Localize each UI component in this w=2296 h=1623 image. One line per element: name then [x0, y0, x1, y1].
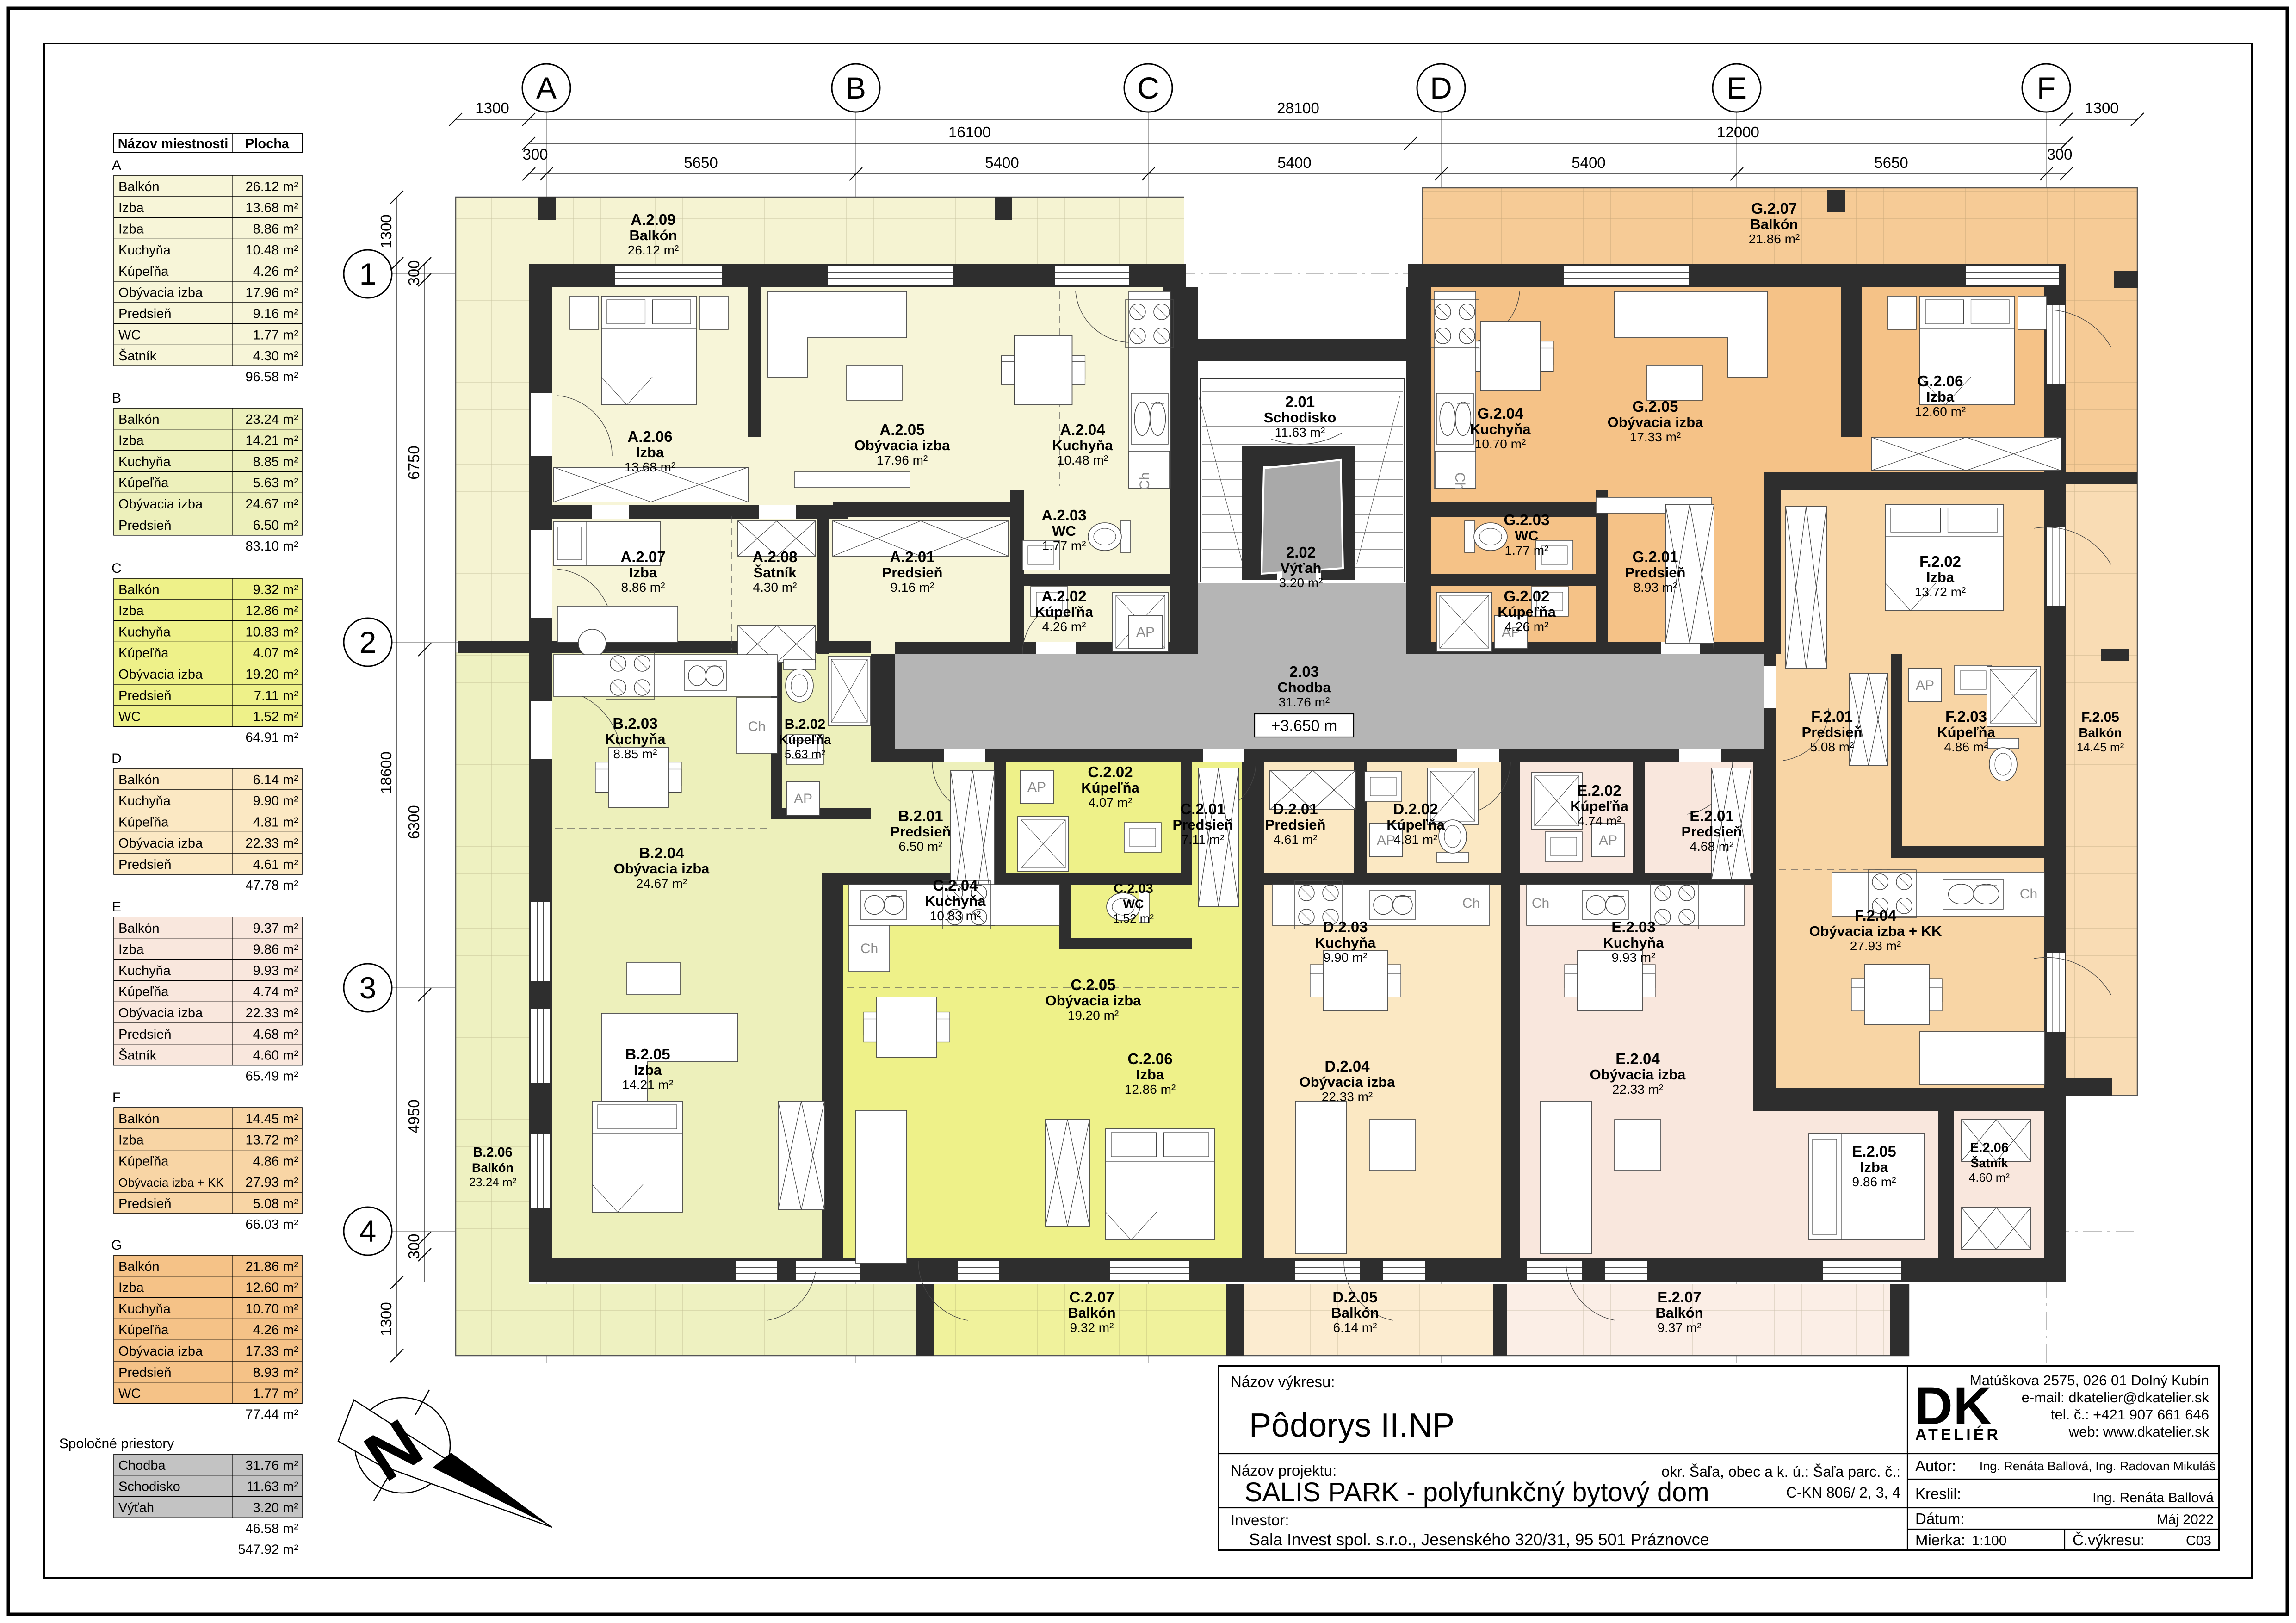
- svg-text:Izba: Izba: [629, 564, 657, 581]
- svg-text:A: A: [112, 158, 121, 173]
- svg-text:Kuchyňa: Kuchyňa: [118, 794, 171, 809]
- svg-text:ATELIÉR: ATELIÉR: [1915, 1426, 2001, 1443]
- svg-text:24.67 m²: 24.67 m²: [636, 876, 687, 891]
- svg-text:11.63 m²: 11.63 m²: [1275, 425, 1325, 440]
- svg-text:G.2.01: G.2.01: [1632, 548, 1678, 565]
- svg-text:Balkón: Balkón: [118, 412, 160, 427]
- svg-text:8.86 m²: 8.86 m²: [253, 222, 299, 236]
- svg-text:Kúpeľňa: Kúpeľňa: [1937, 724, 1995, 740]
- svg-text:Obývacia izba: Obývacia izba: [1608, 414, 1704, 430]
- svg-text:17.96 m²: 17.96 m²: [246, 285, 299, 300]
- svg-text:8.93 m²: 8.93 m²: [253, 1365, 299, 1380]
- svg-text:Izba: Izba: [118, 1281, 144, 1295]
- svg-text:4.26 m²: 4.26 m²: [253, 264, 299, 279]
- svg-text:Izba: Izba: [118, 942, 144, 957]
- svg-text:Plocha: Plocha: [245, 136, 290, 151]
- svg-text:14.45 m²: 14.45 m²: [246, 1112, 299, 1127]
- svg-text:1.77 m²: 1.77 m²: [253, 328, 299, 342]
- svg-text:Máj 2022: Máj 2022: [2157, 1512, 2214, 1527]
- svg-text:Balkón: Balkón: [629, 227, 677, 243]
- svg-text:5650: 5650: [684, 154, 718, 171]
- svg-text:Predsieň: Predsieň: [118, 1027, 171, 1042]
- svg-text:A.2.06: A.2.06: [627, 428, 672, 445]
- svg-text:D: D: [111, 751, 122, 766]
- svg-text:AP: AP: [1916, 678, 1934, 693]
- svg-text:F.2.03: F.2.03: [1945, 708, 1987, 725]
- svg-text:9.16 m²: 9.16 m²: [253, 307, 299, 322]
- svg-text:10.70 m²: 10.70 m²: [1475, 437, 1526, 451]
- svg-text:Izba: Izba: [1860, 1159, 1888, 1175]
- svg-text:F.2.02: F.2.02: [1919, 553, 1961, 570]
- svg-text:13.68 m²: 13.68 m²: [246, 201, 299, 216]
- svg-text:5.08 m²: 5.08 m²: [1810, 740, 1854, 754]
- svg-text:5.63 m²: 5.63 m²: [785, 747, 825, 761]
- svg-text:Ch: Ch: [2020, 886, 2037, 902]
- svg-text:Predsieň: Predsieň: [118, 1365, 171, 1380]
- svg-text:5.63 m²: 5.63 m²: [253, 476, 299, 490]
- svg-text:Balkón: Balkón: [118, 180, 160, 194]
- svg-text:Predsieň: Predsieň: [1173, 817, 1233, 833]
- svg-text:4.30 m²: 4.30 m²: [753, 580, 797, 595]
- svg-text:Chodba: Chodba: [118, 1458, 166, 1473]
- svg-text:Balkón: Balkón: [1655, 1305, 1703, 1321]
- svg-text:okr. Šaľa, obec a k. ú.: Šaľa: okr. Šaľa, obec a k. ú.: Šaľa parc. č.:: [1661, 1463, 1900, 1480]
- svg-text:12.60 m²: 12.60 m²: [1915, 404, 1966, 419]
- svg-text:Obývacia izba: Obývacia izba: [1300, 1074, 1396, 1090]
- svg-text:C.2.04: C.2.04: [933, 877, 978, 894]
- svg-text:27.93 m²: 27.93 m²: [246, 1175, 299, 1190]
- svg-text:Balkón: Balkón: [472, 1161, 514, 1175]
- svg-text:AP: AP: [1377, 833, 1395, 848]
- svg-text:9.16 m²: 9.16 m²: [891, 580, 934, 595]
- svg-text:B.2.06: B.2.06: [473, 1145, 512, 1160]
- svg-text:26.12 m²: 26.12 m²: [246, 180, 299, 194]
- svg-text:21.86 m²: 21.86 m²: [246, 1259, 299, 1274]
- svg-text:9.90 m²: 9.90 m²: [1324, 950, 1368, 965]
- svg-text:Kuchyňa: Kuchyňa: [118, 454, 171, 469]
- svg-text:C.2.01: C.2.01: [1180, 800, 1225, 818]
- svg-text:1: 1: [359, 257, 377, 291]
- svg-text:1300: 1300: [378, 1302, 395, 1336]
- svg-text:B.2.05: B.2.05: [625, 1046, 670, 1063]
- svg-text:22.33 m²: 22.33 m²: [1322, 1090, 1373, 1104]
- svg-text:Ch: Ch: [1452, 472, 1467, 490]
- svg-text:4.86 m²: 4.86 m²: [1944, 740, 1988, 754]
- svg-text:4.81 m²: 4.81 m²: [253, 815, 299, 830]
- svg-text:65.49 m²: 65.49 m²: [246, 1069, 299, 1084]
- svg-text:Obývacia izba: Obývacia izba: [1046, 992, 1142, 1009]
- svg-text:Ch: Ch: [1137, 472, 1152, 490]
- svg-text:14.45 m²: 14.45 m²: [2077, 740, 2124, 754]
- svg-text:19.20 m²: 19.20 m²: [1068, 1008, 1119, 1022]
- svg-text:4.74 m²: 4.74 m²: [1578, 814, 1621, 828]
- svg-text:4.07 m²: 4.07 m²: [253, 646, 299, 661]
- svg-text:B: B: [846, 71, 866, 105]
- svg-text:8.85 m²: 8.85 m²: [613, 747, 657, 761]
- svg-text:G.2.07: G.2.07: [1751, 200, 1797, 217]
- svg-text:23.24 m²: 23.24 m²: [469, 1175, 517, 1189]
- svg-text:12000: 12000: [1717, 124, 1759, 141]
- svg-text:A.2.05: A.2.05: [879, 421, 924, 438]
- svg-text:Výťah: Výťah: [118, 1500, 154, 1515]
- svg-text:D.2.02: D.2.02: [1393, 800, 1438, 818]
- svg-text:26.12 m²: 26.12 m²: [628, 243, 679, 257]
- svg-text:Izba: Izba: [118, 201, 144, 216]
- svg-text:D.2.03: D.2.03: [1323, 918, 1368, 935]
- svg-text:96.58 m²: 96.58 m²: [246, 370, 299, 384]
- svg-text:13.68 m²: 13.68 m²: [625, 460, 676, 474]
- svg-text:Názov výkresu:: Názov výkresu:: [1231, 1373, 1335, 1390]
- svg-text:Kúpeľňa: Kúpeľňa: [1035, 604, 1093, 620]
- svg-text:1.52 m²: 1.52 m²: [1113, 911, 1154, 925]
- svg-text:Č.výkresu:: Č.výkresu:: [2073, 1531, 2145, 1549]
- svg-text:4.60 m²: 4.60 m²: [1969, 1171, 2010, 1184]
- svg-text:9.37 m²: 9.37 m²: [1658, 1320, 1702, 1335]
- svg-text:D: D: [1430, 71, 1452, 105]
- svg-text:Predsieň: Predsieň: [891, 824, 951, 840]
- svg-text:Kúpeľňa: Kúpeľňa: [118, 1154, 169, 1169]
- svg-text:4.30 m²: 4.30 m²: [253, 349, 299, 364]
- svg-text:C: C: [111, 561, 122, 576]
- svg-text:Izba: Izba: [118, 222, 144, 236]
- svg-text:4.26 m²: 4.26 m²: [1505, 619, 1549, 634]
- svg-text:7.11 m²: 7.11 m²: [1182, 832, 1225, 847]
- svg-text:28100: 28100: [1277, 99, 1319, 117]
- svg-text:3: 3: [359, 971, 377, 1005]
- svg-text:E.2.04: E.2.04: [1615, 1050, 1660, 1067]
- svg-text:Obývacia izba: Obývacia izba: [614, 861, 710, 877]
- svg-text:AP: AP: [1027, 780, 1046, 795]
- svg-text:10.83 m²: 10.83 m²: [930, 909, 981, 923]
- svg-text:Šatník: Šatník: [1970, 1156, 2008, 1170]
- svg-text:D.2.01: D.2.01: [1273, 800, 1318, 818]
- svg-text:Schodisko: Schodisko: [1264, 409, 1337, 426]
- svg-text:Dátum:: Dátum:: [1915, 1510, 1964, 1527]
- svg-text:23.24 m²: 23.24 m²: [246, 412, 299, 427]
- svg-text:Ch: Ch: [748, 719, 766, 734]
- svg-text:E: E: [1727, 71, 1747, 105]
- svg-text:Obývacia izba: Obývacia izba: [118, 836, 203, 851]
- svg-text:Ch: Ch: [1462, 896, 1480, 911]
- svg-text:9.93 m²: 9.93 m²: [253, 963, 299, 978]
- svg-text:Kuchyňa: Kuchyňa: [605, 731, 666, 747]
- svg-text:1.77 m²: 1.77 m²: [1042, 539, 1086, 553]
- svg-text:D.2.05: D.2.05: [1332, 1288, 1377, 1306]
- svg-text:Ch: Ch: [1532, 896, 1549, 911]
- svg-text:Kúpeľňa: Kúpeľňa: [1498, 604, 1556, 620]
- svg-text:Predsieň: Predsieň: [1265, 817, 1326, 833]
- svg-text:8.86 m²: 8.86 m²: [621, 580, 665, 595]
- svg-text:9.93 m²: 9.93 m²: [1612, 950, 1656, 965]
- svg-text:G: G: [111, 1238, 122, 1253]
- svg-text:10.48 m²: 10.48 m²: [246, 243, 299, 258]
- svg-text:F: F: [112, 1090, 121, 1105]
- svg-text:e-mail: dkatelier@dkatelier.sk: e-mail: dkatelier@dkatelier.sk: [2022, 1389, 2209, 1406]
- svg-text:Kúpeľňa: Kúpeľňa: [118, 985, 169, 999]
- svg-text:4950: 4950: [405, 1099, 422, 1133]
- svg-text:G.2.06: G.2.06: [1917, 372, 1963, 390]
- svg-text:9.32 m²: 9.32 m²: [253, 582, 299, 597]
- svg-text:64.91 m²: 64.91 m²: [246, 731, 299, 745]
- svg-text:19.20 m²: 19.20 m²: [246, 667, 299, 682]
- svg-text:547.92 m²: 547.92 m²: [238, 1542, 298, 1557]
- svg-text:Kuchyňa: Kuchyňa: [1315, 935, 1376, 951]
- svg-text:17.96 m²: 17.96 m²: [877, 453, 928, 467]
- svg-text:17.33 m²: 17.33 m²: [246, 1344, 299, 1359]
- svg-text:11.63 m²: 11.63 m²: [247, 1480, 299, 1494]
- svg-text:Balkón: Balkón: [2079, 725, 2122, 740]
- svg-text:Obývacia izba + KK: Obývacia izba + KK: [1809, 923, 1942, 939]
- svg-text:web: www.dkatelier.sk: web: www.dkatelier.sk: [2068, 1424, 2209, 1440]
- svg-text:8.93 m²: 8.93 m²: [1634, 580, 1677, 595]
- svg-text:C.2.06: C.2.06: [1127, 1050, 1172, 1067]
- svg-text:5400: 5400: [985, 154, 1019, 171]
- svg-text:6750: 6750: [405, 446, 422, 479]
- svg-text:Autor:: Autor:: [1915, 1457, 1956, 1474]
- svg-text:Predsieň: Predsieň: [118, 857, 171, 872]
- svg-text:Izba: Izba: [118, 1133, 144, 1148]
- svg-text:1.52 m²: 1.52 m²: [253, 710, 299, 725]
- svg-text:9.90 m²: 9.90 m²: [253, 794, 299, 809]
- svg-text:Kúpeľňa: Kúpeľňa: [118, 815, 169, 830]
- svg-text:Izba: Izba: [1136, 1066, 1164, 1083]
- svg-text:Izba: Izba: [636, 444, 664, 460]
- svg-text:E.2.03: E.2.03: [1611, 918, 1655, 935]
- svg-text:A.2.01: A.2.01: [890, 548, 934, 565]
- svg-text:12.86 m²: 12.86 m²: [246, 604, 299, 619]
- svg-text:WC: WC: [1123, 897, 1144, 911]
- svg-text:21.86 m²: 21.86 m²: [1749, 232, 1800, 246]
- svg-text:13.72 m²: 13.72 m²: [1915, 585, 1966, 599]
- svg-text:B.2.02: B.2.02: [785, 717, 825, 732]
- svg-text:1:100: 1:100: [1972, 1533, 2006, 1549]
- svg-text:Izba: Izba: [1926, 389, 1955, 405]
- svg-text:Šatník: Šatník: [118, 348, 157, 364]
- svg-text:Predsieň: Predsieň: [118, 1196, 171, 1211]
- svg-text:9.37 m²: 9.37 m²: [253, 921, 299, 936]
- svg-text:Ing. Renáta Ballová, Ing. Rado: Ing. Renáta Ballová, Ing. Radovan Mikulá…: [1980, 1459, 2216, 1473]
- svg-text:4: 4: [359, 1214, 377, 1248]
- svg-text:4.81 m²: 4.81 m²: [1394, 832, 1438, 847]
- svg-text:Balkón: Balkón: [118, 1112, 160, 1127]
- svg-text:+3.650 m: +3.650 m: [1271, 717, 1337, 735]
- svg-text:6300: 6300: [405, 805, 422, 839]
- svg-text:Predsieň: Predsieň: [1802, 724, 1863, 740]
- svg-text:27.93 m²: 27.93 m²: [1850, 939, 1901, 953]
- svg-text:6.50 m²: 6.50 m²: [899, 839, 943, 854]
- svg-text:D.2.04: D.2.04: [1324, 1058, 1370, 1075]
- svg-text:SALIS PARK - polyfunkčný bytov: SALIS PARK - polyfunkčný bytový dom: [1244, 1477, 1709, 1507]
- svg-text:300: 300: [405, 260, 422, 285]
- svg-text:Názov projektu:: Názov projektu:: [1231, 1462, 1337, 1479]
- svg-text:47.78 m²: 47.78 m²: [246, 878, 299, 893]
- svg-text:9.86 m²: 9.86 m²: [253, 942, 299, 957]
- svg-text:4.26 m²: 4.26 m²: [1042, 619, 1086, 634]
- svg-text:E.2.05: E.2.05: [1852, 1143, 1896, 1160]
- svg-text:4.74 m²: 4.74 m²: [253, 985, 299, 999]
- svg-text:Balkón: Balkón: [1068, 1305, 1115, 1321]
- svg-text:Kuchyňa: Kuchyňa: [118, 1301, 171, 1316]
- svg-text:Obývacia izba: Obývacia izba: [118, 1344, 203, 1359]
- svg-text:300: 300: [2047, 146, 2072, 163]
- svg-text:1.77 m²: 1.77 m²: [253, 1387, 299, 1401]
- svg-text:77.44 m²: 77.44 m²: [246, 1407, 299, 1422]
- svg-text:8.85 m²: 8.85 m²: [253, 454, 299, 469]
- svg-text:Predsieň: Predsieň: [1682, 824, 1742, 840]
- svg-text:1.77 m²: 1.77 m²: [1505, 543, 1549, 558]
- svg-text:12.60 m²: 12.60 m²: [246, 1281, 299, 1295]
- svg-text:C.2.05: C.2.05: [1071, 976, 1115, 993]
- svg-text:F.2.04: F.2.04: [1855, 907, 1897, 924]
- svg-text:Izba: Izba: [118, 604, 144, 619]
- svg-text:1300: 1300: [475, 99, 509, 117]
- svg-text:Obývacia izba: Obývacia izba: [118, 1006, 203, 1021]
- svg-text:Izba: Izba: [1926, 569, 1955, 585]
- svg-text:2.02: 2.02: [1286, 544, 1316, 561]
- svg-text:Predsieň: Predsieň: [1625, 564, 1686, 581]
- svg-text:Kúpeľňa: Kúpeľňa: [118, 1323, 169, 1338]
- svg-text:1300: 1300: [378, 214, 395, 248]
- svg-text:66.03 m²: 66.03 m²: [246, 1217, 299, 1232]
- svg-text:6.14 m²: 6.14 m²: [253, 773, 299, 787]
- svg-text:F: F: [2037, 71, 2055, 105]
- svg-text:Schodisko: Schodisko: [118, 1480, 180, 1494]
- svg-text:24.67 m²: 24.67 m²: [246, 497, 299, 512]
- svg-text:C-KN 806/ 2, 3, 4: C-KN 806/ 2, 3, 4: [1786, 1484, 1900, 1501]
- svg-text:Názov miestnosti: Názov miestnosti: [118, 136, 229, 151]
- svg-text:4.60 m²: 4.60 m²: [253, 1048, 299, 1063]
- svg-text:G.2.05: G.2.05: [1632, 398, 1678, 415]
- svg-text:5400: 5400: [1277, 154, 1311, 171]
- svg-text:C.2.03: C.2.03: [1114, 881, 1153, 896]
- svg-text:10.83 m²: 10.83 m²: [246, 625, 299, 639]
- svg-text:Kuchyňa: Kuchyňa: [1052, 437, 1114, 453]
- svg-text:Investor:: Investor:: [1231, 1511, 1289, 1529]
- svg-text:9.32 m²: 9.32 m²: [1070, 1320, 1114, 1335]
- svg-text:Obývacia izba: Obývacia izba: [118, 497, 203, 512]
- svg-text:E.2.02: E.2.02: [1577, 782, 1621, 799]
- svg-text:Kúpeľňa: Kúpeľňa: [779, 732, 831, 747]
- svg-text:C: C: [1137, 71, 1159, 105]
- svg-text:B.2.03: B.2.03: [613, 715, 657, 732]
- svg-text:22.33 m²: 22.33 m²: [1612, 1082, 1664, 1096]
- svg-text:18600: 18600: [378, 751, 395, 794]
- svg-text:5650: 5650: [1874, 154, 1908, 171]
- svg-text:Matúškova 2575, 026 01 Dolný K: Matúškova 2575, 026 01 Dolný Kubín: [1970, 1372, 2209, 1388]
- svg-text:5.08 m²: 5.08 m²: [253, 1196, 299, 1211]
- svg-text:E.2.01: E.2.01: [1690, 807, 1733, 824]
- svg-text:Balkón: Balkón: [1331, 1305, 1379, 1321]
- svg-text:16100: 16100: [948, 124, 991, 141]
- svg-text:Mierka:: Mierka:: [1915, 1531, 1965, 1549]
- svg-text:Chodba: Chodba: [1277, 679, 1331, 695]
- svg-text:E.2.06: E.2.06: [1970, 1140, 2009, 1155]
- svg-text:Sala Invest spol. s.r.o., Jese: Sala Invest spol. s.r.o., Jesenského 320…: [1249, 1530, 1709, 1549]
- svg-text:C03: C03: [2186, 1533, 2211, 1549]
- svg-text:A: A: [536, 71, 557, 105]
- svg-text:10.70 m²: 10.70 m²: [246, 1301, 299, 1316]
- svg-text:F.2.01: F.2.01: [1811, 708, 1853, 725]
- svg-text:C.2.02: C.2.02: [1088, 763, 1133, 781]
- svg-text:Kuchyňa: Kuchyňa: [118, 243, 171, 258]
- svg-text:13.72 m²: 13.72 m²: [246, 1133, 299, 1148]
- svg-text:F.2.05: F.2.05: [2081, 710, 2119, 725]
- svg-text:22.33 m²: 22.33 m²: [246, 1006, 299, 1021]
- svg-text:Balkón: Balkón: [118, 773, 160, 787]
- svg-text:Balkón: Balkón: [118, 1259, 160, 1274]
- svg-text:Predsieň: Predsieň: [882, 564, 943, 581]
- svg-text:2.03: 2.03: [1289, 663, 1319, 680]
- svg-text:A.2.03: A.2.03: [1041, 507, 1086, 524]
- svg-text:B.2.04: B.2.04: [639, 844, 684, 861]
- svg-text:2.01: 2.01: [1285, 393, 1315, 410]
- svg-text:E.2.07: E.2.07: [1657, 1288, 1701, 1306]
- svg-text:Obývacia izba: Obývacia izba: [854, 437, 951, 453]
- svg-text:G.2.04: G.2.04: [1477, 405, 1523, 422]
- svg-text:Kúpeľňa: Kúpeľňa: [1081, 780, 1139, 796]
- svg-text:Balkón: Balkón: [1750, 216, 1798, 232]
- svg-text:WC: WC: [118, 710, 141, 725]
- svg-text:31.76 m²: 31.76 m²: [246, 1458, 299, 1473]
- svg-text:3.20 m²: 3.20 m²: [1279, 576, 1323, 590]
- svg-text:31.76 m²: 31.76 m²: [1279, 695, 1330, 709]
- svg-text:5400: 5400: [1572, 154, 1605, 171]
- svg-text:C.2.07: C.2.07: [1069, 1288, 1114, 1306]
- svg-text:B.2.01: B.2.01: [898, 807, 943, 824]
- svg-text:7.11 m²: 7.11 m²: [254, 688, 299, 703]
- svg-text:Obývacia izba + KK: Obývacia izba + KK: [118, 1176, 224, 1189]
- svg-text:AP: AP: [794, 791, 812, 806]
- svg-text:Kuchyňa: Kuchyňa: [118, 963, 171, 978]
- svg-text:Balkón: Balkón: [118, 921, 160, 936]
- svg-text:300: 300: [522, 146, 548, 163]
- svg-text:6.14 m²: 6.14 m²: [1333, 1320, 1377, 1335]
- svg-text:9.86 m²: 9.86 m²: [1852, 1175, 1896, 1189]
- svg-text:4.68 m²: 4.68 m²: [253, 1027, 299, 1042]
- svg-text:G.2.03: G.2.03: [1504, 511, 1549, 528]
- svg-text:14.21 m²: 14.21 m²: [622, 1078, 674, 1092]
- svg-text:4.07 m²: 4.07 m²: [1089, 795, 1133, 810]
- svg-text:3.20 m²: 3.20 m²: [253, 1500, 299, 1515]
- svg-text:12.86 m²: 12.86 m²: [1125, 1082, 1176, 1096]
- svg-text:Kuchyňa: Kuchyňa: [925, 893, 986, 909]
- svg-text:Kúpeľňa: Kúpeľňa: [118, 476, 169, 490]
- svg-text:2: 2: [359, 625, 377, 659]
- svg-text:4.61 m²: 4.61 m²: [253, 857, 299, 872]
- svg-text:B: B: [112, 390, 121, 406]
- svg-text:46.58 m²: 46.58 m²: [246, 1521, 299, 1536]
- svg-text:Predsieň: Predsieň: [118, 688, 171, 703]
- svg-text:A.2.09: A.2.09: [631, 211, 675, 228]
- svg-text:E: E: [112, 899, 121, 915]
- svg-text:WC: WC: [1052, 523, 1076, 539]
- svg-text:Kúpeľňa: Kúpeľňa: [118, 646, 169, 661]
- svg-text:Predsieň: Predsieň: [118, 307, 171, 322]
- svg-text:6.50 m²: 6.50 m²: [253, 518, 299, 533]
- svg-text:300: 300: [405, 1233, 422, 1259]
- svg-text:4.68 m²: 4.68 m²: [1690, 839, 1734, 854]
- svg-text:A.2.02: A.2.02: [1041, 588, 1086, 605]
- svg-text:Obývacia izba: Obývacia izba: [118, 667, 203, 682]
- svg-text:Šatník: Šatník: [118, 1047, 157, 1063]
- svg-text:Ch: Ch: [860, 941, 878, 956]
- svg-text:Výťah: Výťah: [1281, 560, 1322, 576]
- svg-text:83.10 m²: 83.10 m²: [246, 539, 299, 554]
- svg-text:17.33 m²: 17.33 m²: [1630, 430, 1681, 444]
- svg-text:Ing. Renáta Ballová: Ing. Renáta Ballová: [2092, 1490, 2214, 1505]
- svg-text:Kúpeľňa: Kúpeľňa: [118, 264, 169, 279]
- svg-text:tel. č.: +421 907 661 646: tel. č.: +421 907 661 646: [2051, 1406, 2209, 1423]
